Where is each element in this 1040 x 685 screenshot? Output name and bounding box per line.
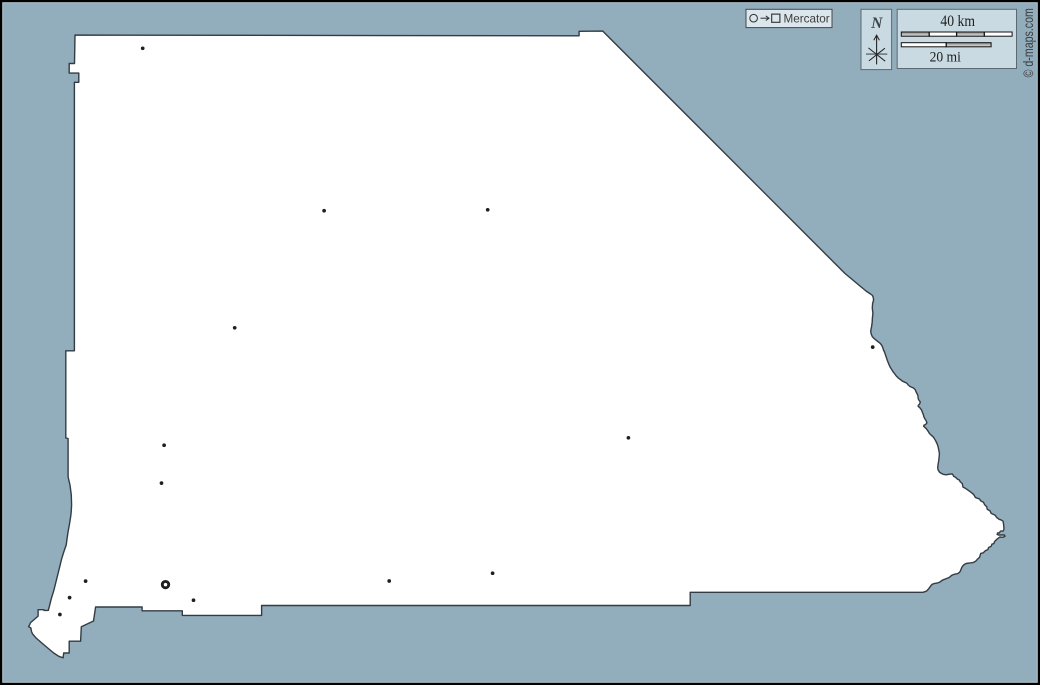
svg-text:Mercator: Mercator — [784, 12, 830, 25]
svg-text:40 km: 40 km — [940, 13, 975, 30]
svg-text:N: N — [870, 15, 883, 32]
svg-text:© d-maps.com: © d-maps.com — [1021, 8, 1036, 77]
svg-text:20 mi: 20 mi — [930, 49, 961, 66]
